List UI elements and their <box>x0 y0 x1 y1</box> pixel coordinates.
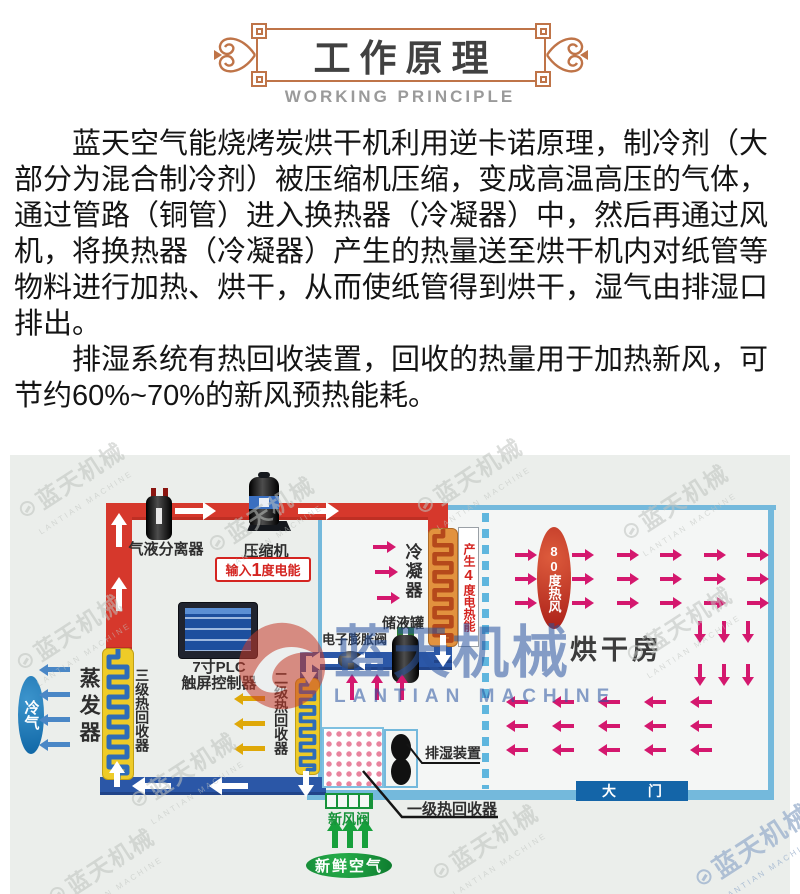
room-divider-dashed-wall <box>482 513 489 789</box>
flow-arrow-icon <box>375 683 379 700</box>
intro-paragraph-1: 蓝天空气能烧烤炭烘干机利用逆卡诺原理，制冷剂（大部分为混合制冷剂）被压缩机压缩，… <box>14 126 786 342</box>
flow-arrow-icon <box>660 553 673 557</box>
flow-arrow-icon <box>400 683 404 700</box>
room-wall-bottom <box>307 790 774 800</box>
evaporator-label: 蒸发器 <box>76 667 100 748</box>
flow-arrow-icon <box>653 700 666 704</box>
flow-arrow-icon <box>362 831 368 848</box>
flow-arrow-icon <box>607 700 620 704</box>
flow-arrow-icon <box>747 601 760 605</box>
title-frame: 工作原理 <box>256 28 546 82</box>
generated-heat-num: 4 <box>459 567 478 584</box>
recovery3-label: 三级热回收器 <box>134 668 150 780</box>
gas-liquid-separator <box>146 496 172 540</box>
brand-logo-icon <box>17 498 38 519</box>
flow-arrow-icon <box>515 601 528 605</box>
flow-arrow-icon <box>747 553 760 557</box>
flow-arrow-icon <box>698 621 702 634</box>
flow-arrow-icon <box>373 545 387 549</box>
compressor <box>249 477 279 525</box>
flow-arrow-icon <box>617 553 630 557</box>
flow-arrow-icon <box>572 577 585 581</box>
flow-arrow-icon <box>243 746 265 751</box>
flow-arrow-icon <box>114 773 120 787</box>
brand-logo-icon <box>15 650 36 671</box>
flow-arrow-icon <box>617 577 630 581</box>
flow-arrow-icon <box>515 724 528 728</box>
flow-arrow-icon <box>572 601 585 605</box>
fresh-air-oval: 新鲜空气 <box>306 853 392 878</box>
flow-arrow-icon <box>222 783 248 789</box>
fresh-air-valve <box>325 793 373 809</box>
page-subtitle: WORKING PRINCIPLE <box>0 87 800 107</box>
flow-arrow-icon <box>306 656 312 672</box>
flow-arrow-icon <box>722 664 726 677</box>
flow-arrow-icon <box>607 724 620 728</box>
flow-arrow-icon <box>515 748 528 752</box>
flow-arrow-icon <box>175 508 203 514</box>
flow-arrow-icon <box>515 577 528 581</box>
flow-arrow-icon <box>48 742 70 747</box>
generated-heat-badge: 产生4度电热能 <box>458 527 479 647</box>
plc-label-line2: 触屏控制器 <box>176 675 262 692</box>
page-title: 工作原理 <box>305 28 498 82</box>
right-flourish-icon <box>546 29 590 81</box>
flow-arrow-icon <box>699 724 712 728</box>
separator-label: 气液分离器 <box>120 541 212 558</box>
input-energy-post: 度电能 <box>262 560 301 579</box>
watermark: 蓝天机械 LANTIAN MACHINE <box>688 793 800 894</box>
flow-arrow-icon <box>48 667 70 672</box>
flow-arrow-icon <box>660 601 673 605</box>
page: 工作原理 WORKING PRINCIPLE 蓝天空气能烧烤炭烘干机利用逆卡诺原… <box>0 0 800 894</box>
generated-heat-pre: 产生 <box>459 543 478 567</box>
flow-arrow-icon <box>561 748 574 752</box>
working-principle-diagram: 气液分离器 压缩机 输入1度电能 冷凝器 产生4度电热能 储液罐 电子膨胀阀 <box>10 455 790 894</box>
flow-arrow-icon <box>145 783 171 789</box>
heat-recovery-1 <box>322 727 384 788</box>
flow-arrow-icon <box>699 700 712 704</box>
flow-arrow-icon <box>48 717 70 722</box>
hot-wind-oval: 80度热风 <box>537 527 571 629</box>
flow-arrow-icon <box>243 696 265 701</box>
generated-heat-post: 度电热能 <box>459 584 478 632</box>
heat-recovery-coil-2 <box>295 678 320 775</box>
flow-arrow-icon <box>320 658 338 664</box>
flow-arrow-icon <box>722 621 726 634</box>
flow-arrow-icon <box>653 724 666 728</box>
plc-controller-screen <box>178 602 258 659</box>
flow-arrow-icon <box>704 577 717 581</box>
input-energy-num: 1 <box>251 561 261 579</box>
brand-logo-icon <box>47 884 68 894</box>
flow-arrow-icon <box>350 683 354 700</box>
dehumidifier-unit <box>384 729 418 788</box>
flow-arrow-icon <box>243 721 265 726</box>
gate-box: 大 门 <box>576 781 688 801</box>
flow-arrow-icon <box>561 724 574 728</box>
flow-arrow-icon <box>704 601 717 605</box>
recovery1-label: 一级热回收器 <box>407 801 497 818</box>
fresh-air-valve-label: 新风阀 <box>325 811 373 827</box>
left-flourish-icon <box>212 29 256 81</box>
flow-arrow-icon <box>660 577 673 581</box>
condenser-label: 冷凝器 <box>402 543 422 600</box>
flow-arrow-icon <box>116 589 122 611</box>
plc-label-line1: 7寸PLC <box>176 659 262 676</box>
flow-arrow-icon <box>698 664 702 677</box>
flow-arrow-icon <box>347 831 353 848</box>
flow-arrow-icon <box>607 748 620 752</box>
flow-arrow-icon <box>746 664 750 677</box>
fan-icon <box>391 734 411 761</box>
flow-arrow-icon <box>440 635 446 655</box>
flow-arrow-icon <box>746 621 750 634</box>
flow-arrow-icon <box>653 748 666 752</box>
flow-arrow-icon <box>572 553 585 557</box>
condenser-coil <box>428 528 458 647</box>
dehumidifier-label: 排湿装置 <box>425 745 481 761</box>
flow-arrow-icon <box>704 553 717 557</box>
flow-arrow-icon <box>375 570 389 574</box>
intro-text: 蓝天空气能烧烤炭烘干机利用逆卡诺原理，制冷剂（大部分为混合制冷剂）被压缩机压缩，… <box>14 126 786 414</box>
fan-icon <box>391 758 411 785</box>
flow-arrow-icon <box>303 771 309 785</box>
intro-paragraph-2: 排湿系统有热回收装置，回收的热量用于加热新风，可节约60%~70%的新风预热能耗… <box>14 342 786 414</box>
flow-arrow-icon <box>332 831 338 848</box>
flow-arrow-icon <box>48 692 70 697</box>
input-energy-pre: 输入 <box>225 560 251 579</box>
recovery2-label: 二级热回收器 <box>273 671 289 783</box>
brand-logo-icon <box>431 860 452 881</box>
flow-arrow-icon <box>298 508 326 514</box>
flow-arrow-icon <box>377 596 391 600</box>
drying-room-label: 烘干房 <box>570 635 663 666</box>
room-wall-top <box>440 505 776 510</box>
flow-arrow-icon <box>561 700 574 704</box>
input-energy-badge: 输入1度电能 <box>215 557 311 582</box>
flow-arrow-icon <box>515 700 528 704</box>
flow-arrow-icon <box>365 658 383 664</box>
expansion-valve-label: 电子膨胀阀 <box>322 633 387 648</box>
flow-arrow-icon <box>617 601 630 605</box>
flow-arrow-icon <box>699 748 712 752</box>
flow-arrow-icon <box>747 577 760 581</box>
watermark: 蓝天机械 LANTIAN MACHINE <box>42 819 171 894</box>
receiver-label: 储液罐 <box>382 615 424 631</box>
flow-arrow-icon <box>515 553 528 557</box>
brand-logo-icon <box>694 866 715 887</box>
